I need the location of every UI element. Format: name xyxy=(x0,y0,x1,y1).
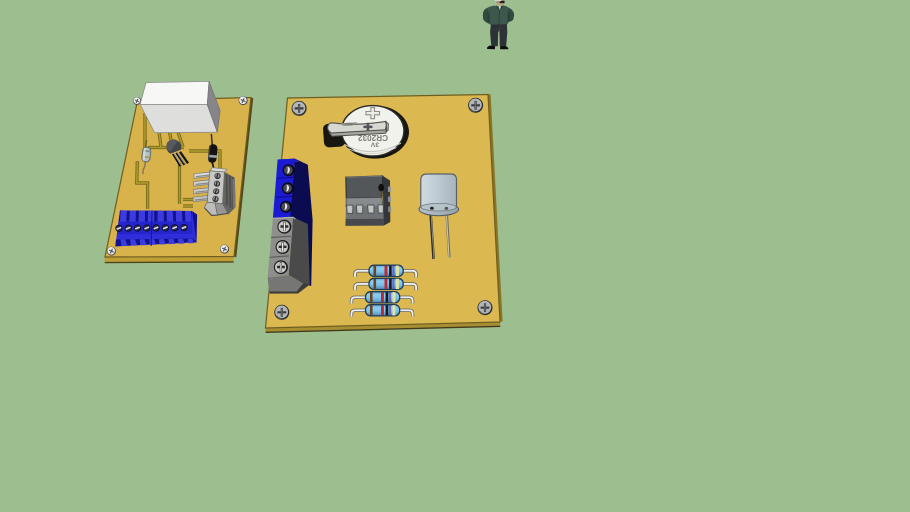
svg-text:3V: 3V xyxy=(370,140,379,147)
